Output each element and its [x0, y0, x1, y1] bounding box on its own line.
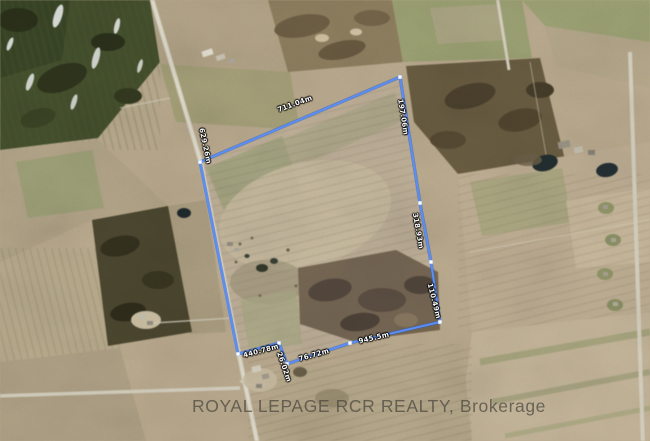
vertex-marker	[418, 201, 422, 205]
vertex-marker	[429, 260, 433, 264]
aerial-property-photo: 711.04m 629.26m 197.06m 318.93m 110.49m …	[0, 0, 650, 441]
vertex-marker	[198, 160, 202, 164]
vertex-marker	[348, 341, 352, 345]
vertex-marker	[236, 352, 240, 356]
vertex-marker	[398, 75, 402, 79]
brokerage-watermark: ROYAL LEPAGE RCR REALTY, Brokerage	[192, 396, 546, 417]
vertex-marker	[438, 320, 442, 324]
property-boundary-overlay	[0, 0, 650, 441]
